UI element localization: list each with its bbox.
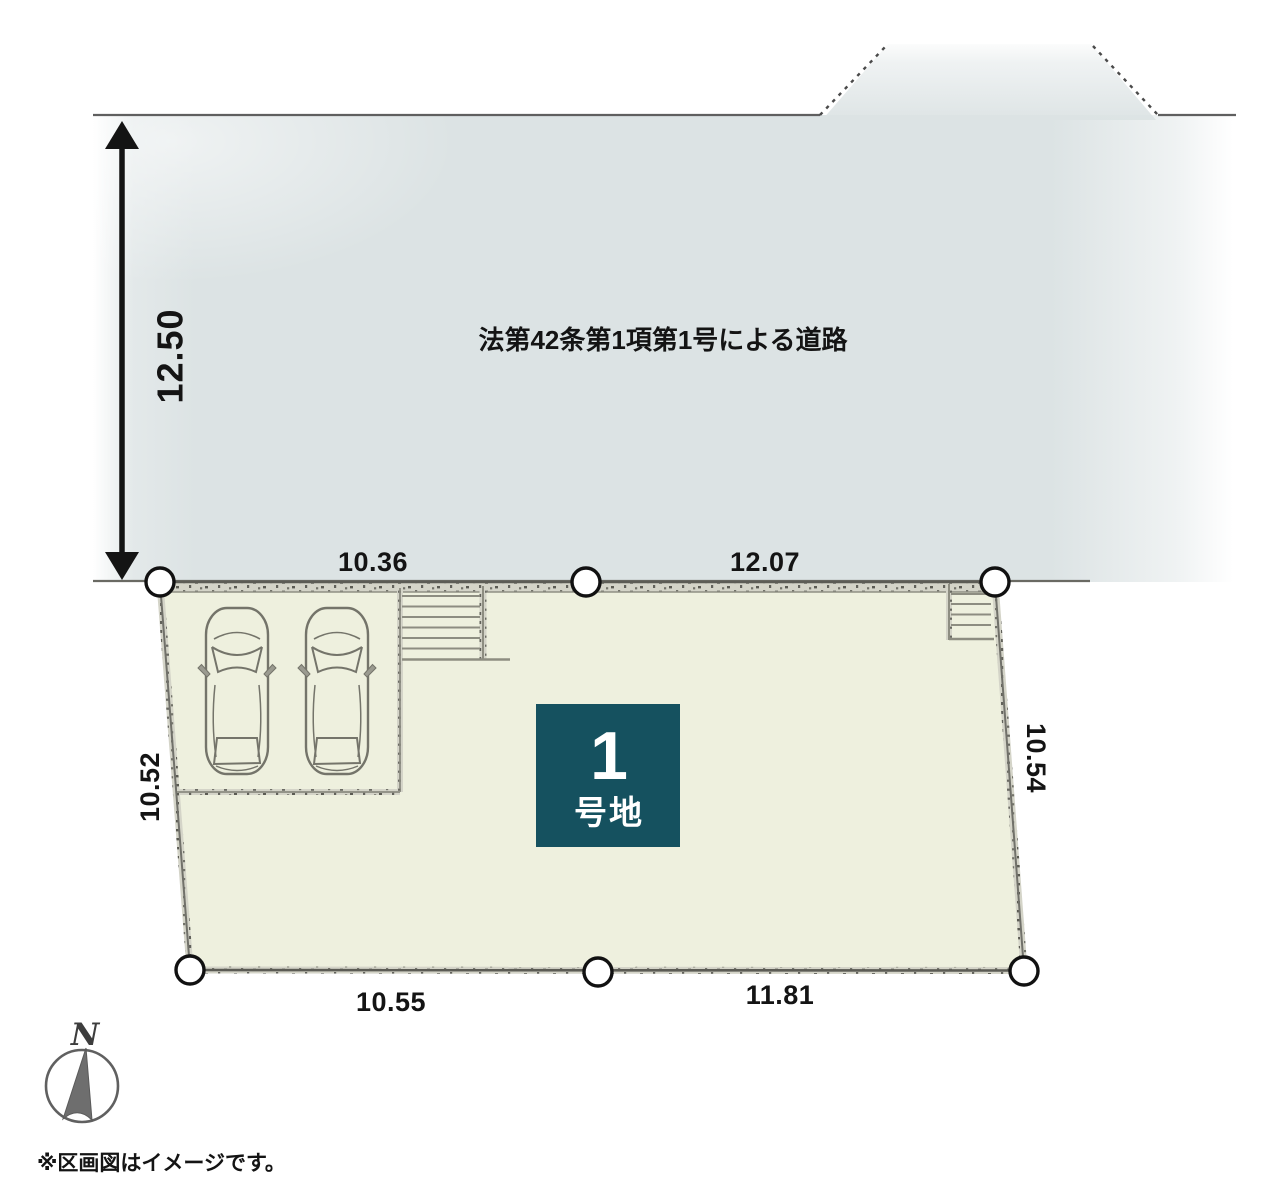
road-area: 法第42条第1項第1号による道路 xyxy=(93,44,1236,582)
boundary-point-marker xyxy=(572,568,600,596)
dimension-label-bottom-left: 10.55 xyxy=(356,987,426,1017)
lot-number: 1 xyxy=(590,718,628,794)
compass: N xyxy=(46,1017,118,1122)
dimension-label-right: 10.54 xyxy=(1021,723,1051,793)
footnote-text: ※区画図はイメージです。 xyxy=(37,1152,286,1175)
road-label: 法第42条第1項第1号による道路 xyxy=(478,325,848,355)
compass-north-label: N xyxy=(70,1017,101,1053)
compass-needle-icon xyxy=(63,1048,92,1120)
lot-1: 1 号地 10.36 12.07 10.52 10.54 10.55 11.81 xyxy=(135,547,1051,1017)
dimension-label-bottom-right: 11.81 xyxy=(746,980,815,1010)
lot-number-badge: 1 号地 xyxy=(536,704,680,847)
plan-canvas: 法第42条第1項第1号による道路 12.50 xyxy=(0,0,1280,1193)
dimension-label-top-right: 12.07 xyxy=(730,547,800,577)
car-icon xyxy=(198,608,276,774)
dimension-label-road-width: 12.50 xyxy=(150,308,191,403)
boundary-point-marker xyxy=(176,956,204,984)
dimension-label-left: 10.52 xyxy=(135,752,165,822)
boundary-point-marker xyxy=(981,568,1009,596)
lot-number-suffix: 号地 xyxy=(574,794,644,831)
boundary-point-marker xyxy=(1010,957,1038,985)
dimension-label-top-left: 10.36 xyxy=(338,547,408,577)
road-north-continuation xyxy=(822,44,1156,120)
boundary-point-marker xyxy=(146,568,174,596)
car-icon xyxy=(298,608,376,774)
lot-plan-diagram: 法第42条第1項第1号による道路 12.50 xyxy=(0,0,1280,1193)
boundary-point-marker xyxy=(584,958,612,986)
